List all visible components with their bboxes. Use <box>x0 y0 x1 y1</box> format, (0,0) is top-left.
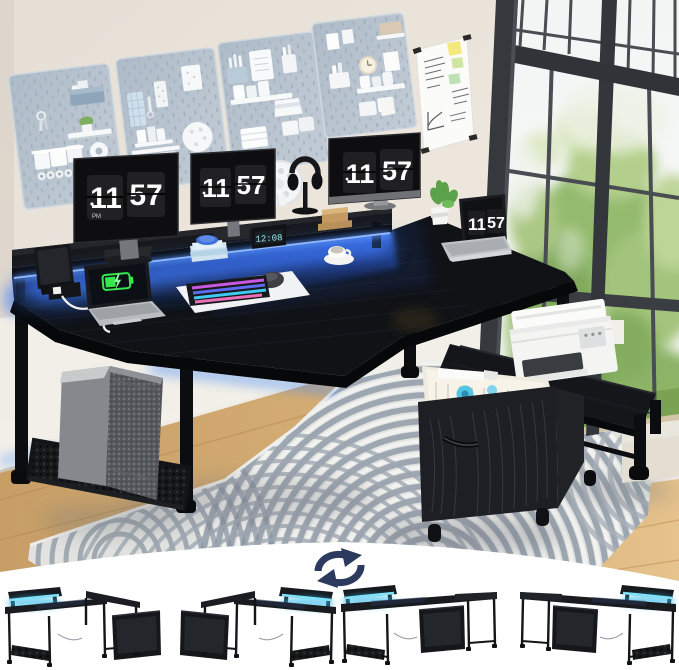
svg-text:11: 11 <box>346 159 375 189</box>
svg-text:57: 57 <box>129 179 162 212</box>
svg-text:57: 57 <box>237 170 266 200</box>
svg-text:57: 57 <box>487 215 505 232</box>
svg-text:PM: PM <box>92 214 101 220</box>
svg-text:57: 57 <box>382 156 412 186</box>
svg-text:11: 11 <box>468 215 486 234</box>
svg-text:11: 11 <box>90 182 122 215</box>
svg-text:12:08: 12:08 <box>255 233 283 245</box>
svg-text:11: 11 <box>202 173 230 203</box>
